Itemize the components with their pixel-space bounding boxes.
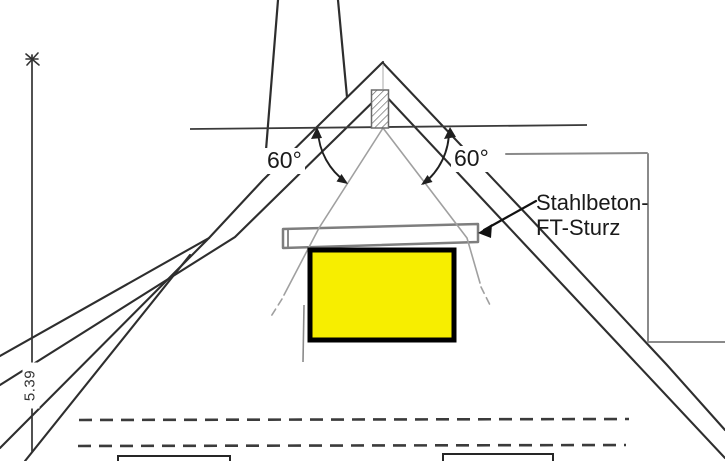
lintel-label-line1: Stahlbeton- [536, 190, 649, 215]
angle-label-right: 60° [451, 146, 492, 172]
lintel-outline [283, 224, 478, 248]
roof-left-lower-line-2 [25, 255, 190, 461]
window-opening-highlight [310, 250, 454, 340]
angle-label-left: 60° [264, 148, 305, 174]
angle-arc-left [311, 127, 348, 184]
dashed-line-lower [78, 445, 626, 446]
lintel-label: Stahlbeton- FT-Sturz [536, 190, 649, 240]
lintel-pointer-arrow [478, 201, 536, 238]
ridge-post-hatched [372, 90, 389, 128]
angle-ray-right-faded [481, 287, 490, 305]
chimney-right-line [338, 0, 347, 97]
height-dimension-label: 5.39 [23, 363, 40, 409]
lower-window-right [443, 454, 553, 461]
pointer-arrowhead [478, 224, 492, 238]
roof-right-outer-line [383, 63, 725, 430]
lintel-label-line2: FT-Sturz [536, 215, 649, 240]
lower-window-left [118, 456, 230, 461]
angle-ray-left-faded [270, 299, 282, 318]
window-jamb-line [303, 305, 304, 362]
roof-section-drawing: 60° 60° Stahlbeton- FT-Sturz 5.39 [0, 0, 725, 461]
arc-left-top-arrowhead [311, 127, 322, 139]
building-edge-bracket [506, 153, 725, 342]
eaves-dashed-lines [78, 419, 629, 446]
dashed-line-upper [79, 419, 629, 420]
lower-window-outlines [118, 454, 553, 461]
